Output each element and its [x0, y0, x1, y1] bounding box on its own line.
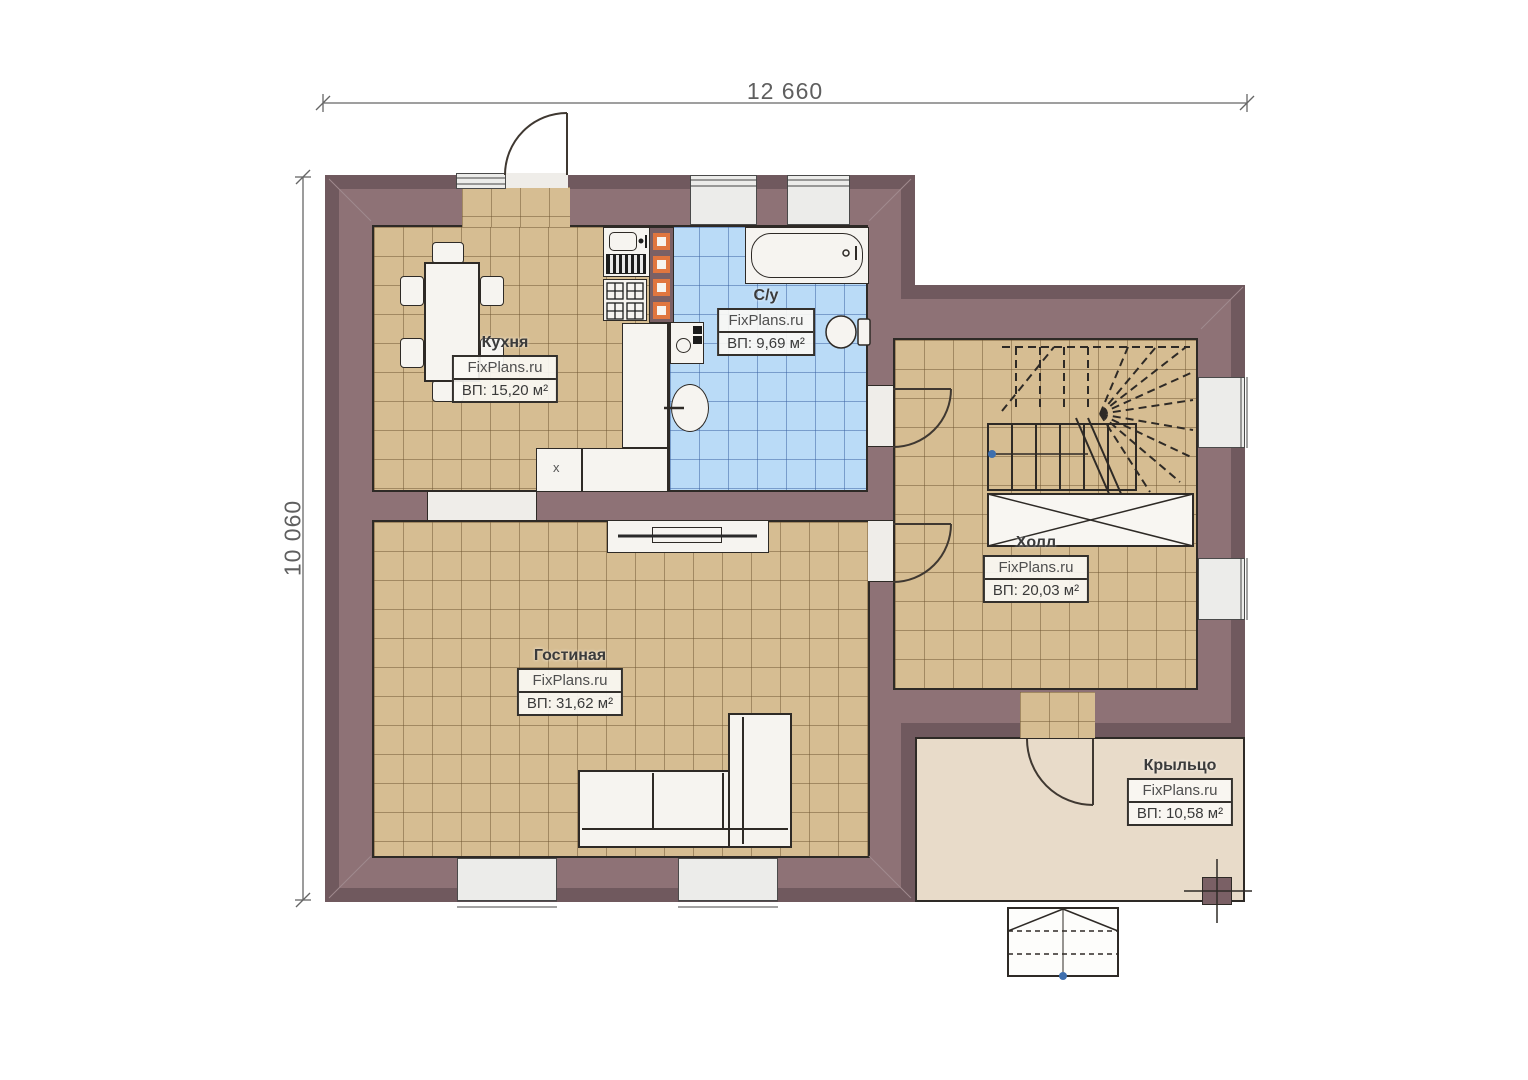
- kitchen-area: ВП: 15,20 м²: [454, 380, 556, 401]
- porch-column: [1202, 877, 1232, 905]
- entry-vestibule-floor: [462, 187, 570, 227]
- bathtub-basin: [751, 233, 863, 278]
- kitchen-brand: FixPlans.ru: [454, 357, 556, 380]
- living-room-name: Гостиная: [534, 647, 606, 665]
- window-right-2: [1198, 558, 1245, 620]
- bathroom-name: С/у: [754, 287, 779, 305]
- living-room-area: ВП: 31,62 м²: [519, 693, 621, 714]
- kitchen-tag: Кухня FixPlans.ru ВП: 15,20 м²: [452, 334, 558, 403]
- dimension-width-label: 12 660: [747, 78, 823, 105]
- window-top-bathroom-2: [787, 175, 850, 225]
- dimension-height-label: 10 060: [280, 500, 307, 576]
- kitchen-info-box: FixPlans.ru ВП: 15,20 м²: [452, 355, 558, 403]
- living-room-info-box: FixPlans.ru ВП: 31,62 м²: [517, 668, 623, 716]
- porch-steps: [1008, 908, 1118, 980]
- window-bottom-2: [678, 858, 778, 901]
- chair: [400, 276, 424, 306]
- hall-area: ВП: 20,03 м²: [985, 580, 1087, 601]
- kitchen-sink-drainer: [606, 254, 646, 274]
- floor-plan-canvas: x: [0, 0, 1528, 1080]
- window-top-bathroom-1: [690, 175, 757, 225]
- bathroom-area: ВП: 9,69 м²: [719, 333, 813, 354]
- hall-brand: FixPlans.ru: [985, 557, 1087, 580]
- washbasin-bowl: [676, 338, 691, 353]
- kitchen-lower-unit: [582, 448, 668, 492]
- vent-cell: [653, 233, 670, 250]
- vent-cell: [653, 279, 670, 296]
- kitchen-living-doorway: [427, 492, 537, 520]
- sofa-back-line: [582, 828, 788, 830]
- bathroom-brand: FixPlans.ru: [719, 310, 813, 333]
- living-room-tag: Гостиная FixPlans.ru ВП: 31,62 м²: [517, 647, 623, 716]
- window-top-left: [456, 173, 506, 189]
- vent-cell: [653, 302, 670, 319]
- hall-tag: Холл FixPlans.ru ВП: 20,03 м²: [983, 534, 1089, 603]
- porch-name: Крыльцо: [1144, 757, 1217, 775]
- porch-brand: FixPlans.ru: [1129, 780, 1231, 803]
- bathroom-tag: С/у FixPlans.ru ВП: 9,69 м²: [717, 287, 815, 356]
- hall-floor: [893, 338, 1198, 690]
- chair: [480, 276, 504, 306]
- sofa-chaise-line: [742, 717, 744, 844]
- chair: [432, 242, 464, 264]
- sofa-cushion-divider: [722, 773, 724, 829]
- porch-tag: Крыльцо FixPlans.ru ВП: 10,58 м²: [1127, 757, 1233, 826]
- porch-area: ВП: 10,58 м²: [1129, 803, 1231, 824]
- stove: [603, 279, 647, 321]
- living-hall-doorway: [868, 520, 893, 582]
- window-bottom-1: [457, 858, 557, 901]
- kitchen-appliance-label: x: [553, 460, 560, 475]
- top-entry-door-gap: [505, 173, 568, 188]
- porch-info-box: FixPlans.ru ВП: 10,58 м²: [1127, 778, 1233, 826]
- sofa-cushion-divider: [652, 773, 654, 829]
- bathroom-hall-doorway: [868, 385, 893, 447]
- vent-cell: [653, 256, 670, 273]
- hall-info-box: FixPlans.ru ВП: 20,03 м²: [983, 555, 1089, 603]
- hall-name: Холл: [1016, 534, 1056, 552]
- kitchen-name: Кухня: [482, 334, 529, 352]
- living-room-brand: FixPlans.ru: [519, 670, 621, 693]
- pedestal-sink: [671, 384, 709, 432]
- kitchen-counter: [622, 323, 668, 448]
- tv: [652, 527, 722, 543]
- bathroom-info-box: FixPlans.ru ВП: 9,69 м²: [717, 308, 815, 356]
- window-right-1: [1198, 377, 1245, 448]
- kitchen-sink-bowl: [609, 232, 637, 251]
- floor-plan-page: { "plan": { "dimensions": { "width_label…: [0, 0, 1528, 1080]
- hall-porch-door-threshold: [1020, 692, 1095, 738]
- chair: [400, 338, 424, 368]
